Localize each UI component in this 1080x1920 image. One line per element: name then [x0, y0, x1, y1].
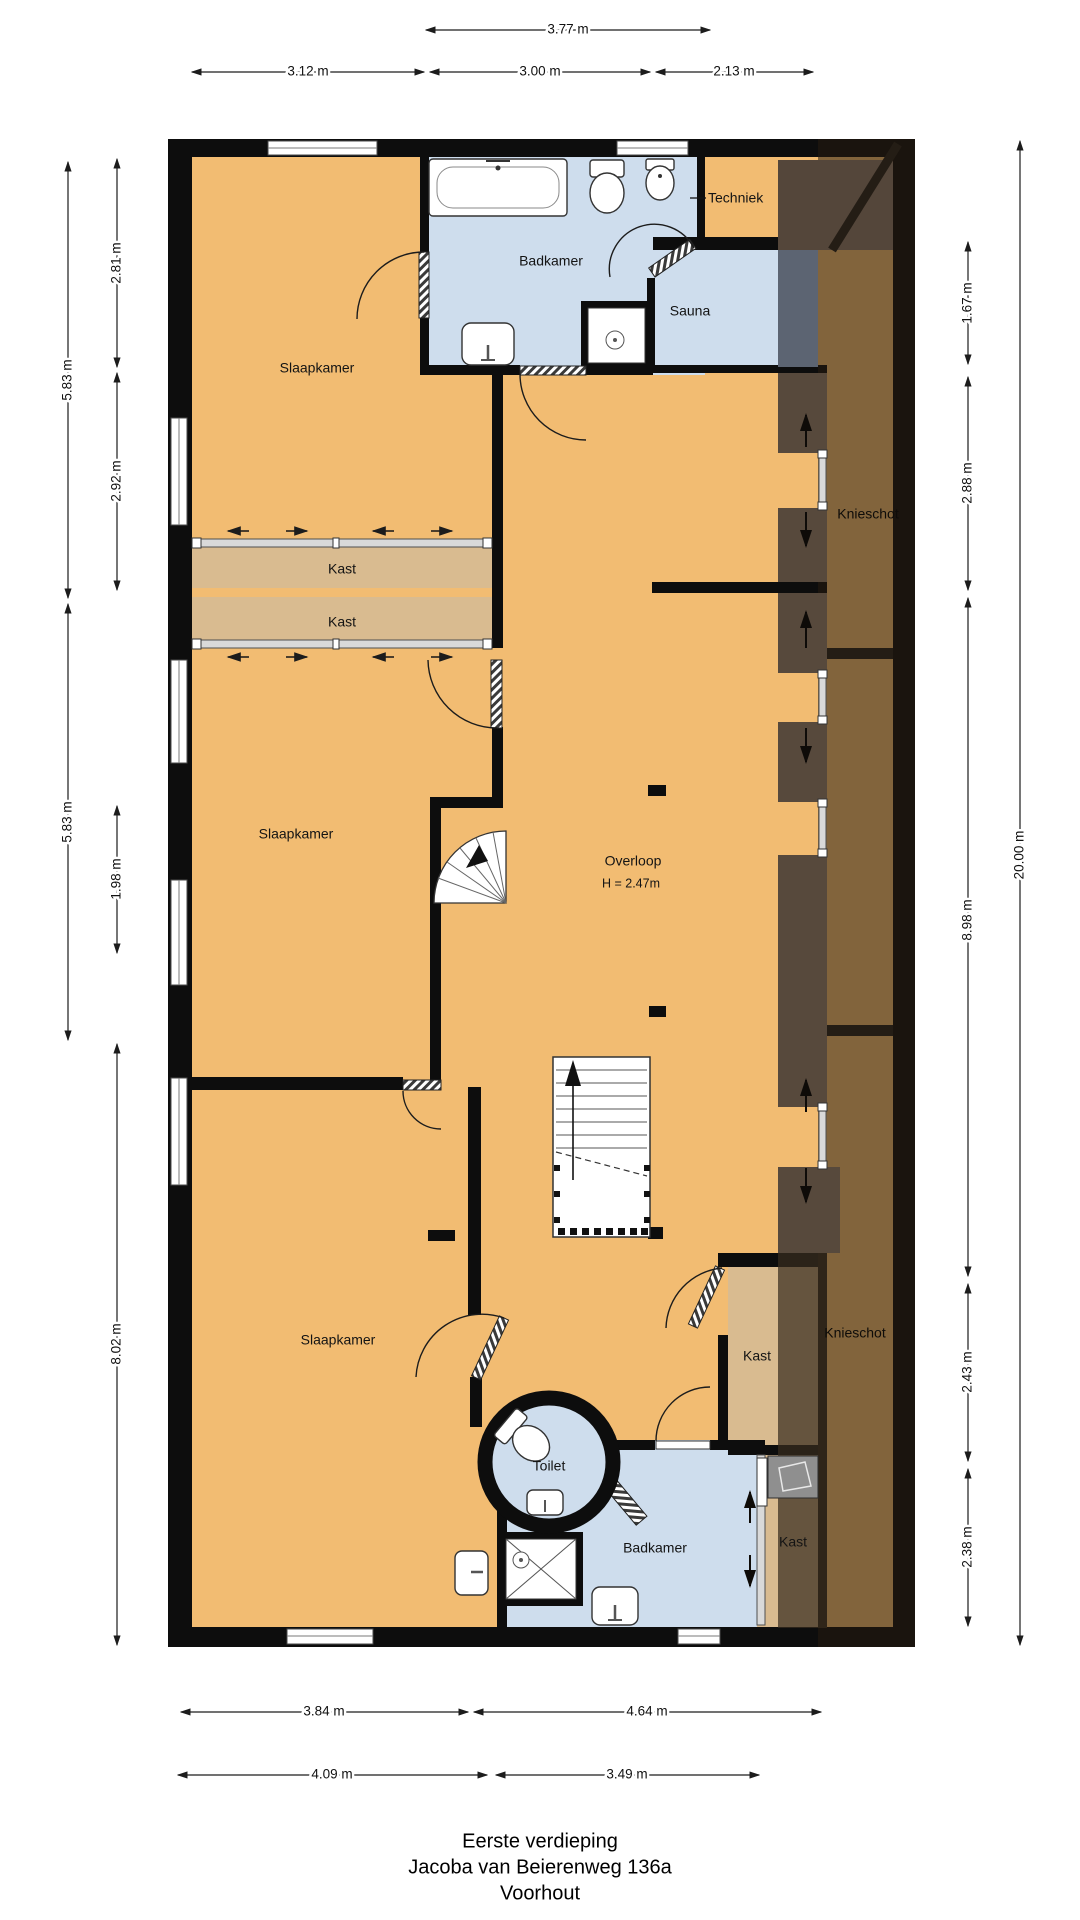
- sink-slaapkamer-bottom: [455, 1551, 488, 1595]
- dim-left-lower-inner: 1.98 m: [109, 858, 124, 899]
- dim-top-right: 2.13 m: [713, 64, 754, 79]
- label-overloop: Overloop: [605, 853, 662, 869]
- knieschot-zones: [778, 139, 915, 1647]
- label-badkamer-bottom: Badkamer: [623, 1540, 687, 1556]
- dim-right-5: 2.38 m: [960, 1526, 975, 1567]
- label-sauna: Sauna: [670, 303, 711, 319]
- dim-right-4: 2.43 m: [960, 1351, 975, 1392]
- title-city: Voorhout: [500, 1882, 581, 1904]
- dim-bottom-right-1: 4.64 m: [626, 1704, 667, 1719]
- sink-badkamer-top: [462, 323, 514, 365]
- label-kast-2: Kast: [328, 614, 356, 630]
- window-bottom-2: [678, 1629, 720, 1644]
- floor-plan-drawing: Slaapkamer Badkamer Techniek Sauna Kast …: [0, 0, 1080, 1920]
- attic-over-sauna: [778, 250, 818, 367]
- kast4-appliance: [757, 1456, 818, 1506]
- door-leaf-badkamer-entry: [520, 366, 586, 375]
- attic-overlay-strip: [818, 139, 915, 1647]
- window-left-4: [171, 1078, 187, 1185]
- dim-left-middle-outer: 5.83 m: [60, 801, 75, 842]
- window-left-2: [171, 660, 187, 763]
- title-block: Eerste verdieping Jacoba van Beierenweg …: [408, 1830, 672, 1904]
- bathtub: [429, 159, 567, 216]
- label-kast-4: Kast: [779, 1534, 807, 1550]
- door-leaf-slaapkamer-mid: [491, 660, 502, 728]
- dim-right-total: 20.00 m: [1012, 831, 1027, 880]
- label-techniek: Techniek: [708, 190, 764, 206]
- window-top-2: [617, 141, 688, 155]
- dim-right-1: 1.67 m: [960, 282, 975, 323]
- dim-left-mid-inner: 2.92 m: [109, 460, 124, 501]
- toilet-fixture-top: [590, 160, 624, 213]
- window-top-1: [268, 141, 377, 155]
- shower-top: [588, 308, 645, 363]
- label-kast-1: Kast: [328, 561, 356, 577]
- label-slaapkamer-top: Slaapkamer: [280, 360, 355, 376]
- label-overloop-height: H = 2.47m: [602, 876, 660, 890]
- title-floor: Eerste verdieping: [462, 1830, 618, 1852]
- dim-bottom-left-2: 4.09 m: [311, 1767, 352, 1782]
- window-bottom-1: [287, 1629, 373, 1644]
- title-address: Jacoba van Beierenweg 136a: [408, 1856, 672, 1878]
- dim-top-middle: 3.00 m: [519, 64, 560, 79]
- door-leaf-badkamer-bottom: [656, 1441, 710, 1449]
- label-toilet: Toilet: [533, 1458, 566, 1474]
- dim-top-left: 3.12 m: [287, 64, 328, 79]
- floorplan-page: Slaapkamer Badkamer Techniek Sauna Kast …: [0, 0, 1080, 1920]
- dim-top-width: 3.77 m: [547, 22, 588, 37]
- dim-left-upper-inner: 2.81 m: [109, 242, 124, 283]
- window-left-1: [171, 418, 187, 525]
- dim-bottom-left-1: 3.84 m: [303, 1704, 344, 1719]
- shower-bottom: [506, 1539, 576, 1599]
- dim-right-3: 8.98 m: [960, 899, 975, 940]
- label-knieschot-top: Knieschot: [837, 506, 899, 522]
- sink-badkamer-bottom: [592, 1587, 638, 1625]
- label-slaapkamer-bottom: Slaapkamer: [301, 1332, 376, 1348]
- label-knieschot-bottom: Knieschot: [824, 1325, 886, 1341]
- bidet-fixture: [646, 159, 674, 200]
- window-left-3: [171, 880, 187, 985]
- straight-staircase: [553, 1057, 650, 1237]
- label-badkamer-top: Badkamer: [519, 253, 583, 269]
- door-leaf-badkamer-top: [419, 252, 429, 318]
- dim-bottom-right-2: 3.49 m: [606, 1767, 647, 1782]
- dim-left-upper-outer: 5.83 m: [60, 359, 75, 400]
- label-kast-3: Kast: [743, 1348, 771, 1364]
- door-leaf-divider: [403, 1080, 441, 1090]
- label-slaapkamer-mid: Slaapkamer: [259, 826, 334, 842]
- dim-left-bottom: 8.02 m: [109, 1323, 124, 1364]
- dim-right-2: 2.88 m: [960, 462, 975, 503]
